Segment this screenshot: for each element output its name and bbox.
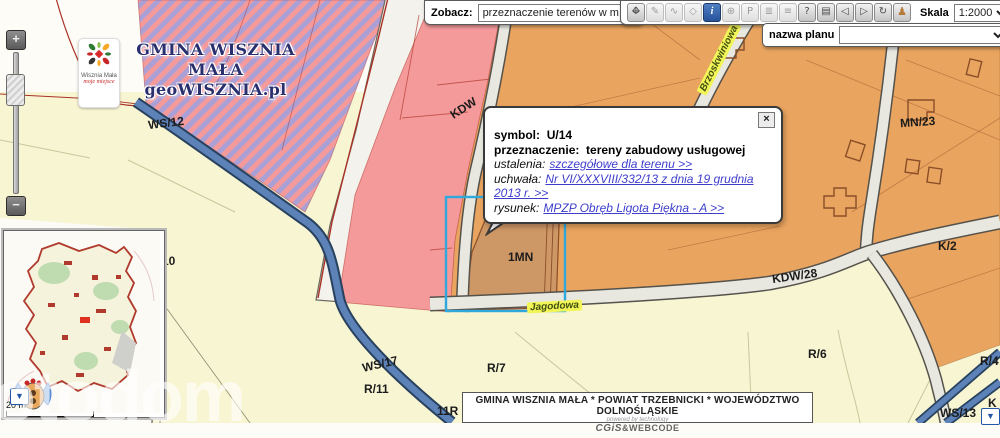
user-icon[interactable]: ♟ xyxy=(893,3,911,22)
info-icon[interactable]: i xyxy=(703,3,721,22)
back-icon[interactable]: ◁ xyxy=(836,3,854,22)
measure-icon[interactable]: ✎ xyxy=(646,3,664,22)
print-icon[interactable]: ▤ xyxy=(817,3,835,22)
site-title: GMINA WISZNIA MAŁA geoWISZNIA.pl xyxy=(118,40,313,100)
geoportal-app: { "branding":{ "municipality":"GMINA WIS… xyxy=(0,0,1000,423)
popup-purpose-value: tereny zabudowy usługowej xyxy=(586,143,745,157)
help-icon[interactable]: ? xyxy=(798,3,816,22)
forward-icon[interactable]: ▷ xyxy=(855,3,873,22)
scale-label: Skala xyxy=(920,7,949,19)
plan-name-panel: nazwa planu xyxy=(762,23,1000,47)
view-select-panel: Zobacz: przeznaczenie terenów w mpzp xyxy=(424,0,643,25)
overview-map-graphic xyxy=(4,231,160,413)
findings-link[interactable]: szczegółowe dla terenu >> xyxy=(549,157,692,171)
parking-icon[interactable]: P xyxy=(741,3,759,22)
inset-collapse-button[interactable]: ▼ xyxy=(10,388,29,405)
popup-symbol-row: symbol: U/14 xyxy=(494,128,772,143)
popup-symbol-value: U/14 xyxy=(547,128,572,142)
zoom-out-button[interactable]: − xyxy=(6,196,26,216)
footer-title: GMINA WISZNIA MAŁA * POWIAT TRZEBNICKI *… xyxy=(463,395,812,417)
plan-name-label: nazwa planu xyxy=(769,29,834,41)
main-toolbar: ↔ ↕ ✎ ∿ ◇ i ⊕ P ≣ ≡ ? ▤ ◁ ▷ ↻ ♟ Skala 1:… xyxy=(620,0,1000,25)
footer-brand: CGiS&WEBCODE xyxy=(463,423,812,434)
map-arrow-marker[interactable]: ▼ xyxy=(981,408,1000,425)
view-select[interactable]: przeznaczenie terenów w mpzp xyxy=(478,4,636,22)
legend-icon[interactable]: ≡ xyxy=(779,3,797,22)
layers-icon[interactable]: ≣ xyxy=(760,3,778,22)
measure-area-icon[interactable]: ◇ xyxy=(684,3,702,22)
view-select-label: Zobacz: xyxy=(431,7,473,19)
popup-purpose-row: przeznaczenie: tereny zabudowy usługowej xyxy=(494,143,772,158)
popup-findings-row: ustalenia:szczegółowe dla terenu >> xyxy=(494,157,772,172)
site-title-municipality: GMINA WISZNIA MAŁA xyxy=(118,40,313,80)
globe-icon[interactable]: ⊕ xyxy=(722,3,740,22)
footer-bar: GMINA WISZNIA MAŁA * POWIAT TRZEBNICKI *… xyxy=(462,392,813,423)
feature-info-popup: × symbol: U/14 przeznaczenie: tereny zab… xyxy=(483,106,783,224)
logo-tagline: moje miejsce xyxy=(79,79,119,85)
scale-select[interactable]: 1:2000 xyxy=(954,4,1000,22)
overview-view-marker xyxy=(80,317,90,323)
pan-icon[interactable]: ↔ ↕ xyxy=(627,3,645,22)
close-icon[interactable]: × xyxy=(758,112,775,128)
drawing-link[interactable]: MPZP Obręb Ligota Piękna - A >> xyxy=(543,201,724,215)
measure-line-icon[interactable]: ∿ xyxy=(665,3,683,22)
popup-drawing-row: rysunek:MPZP Obręb Ligota Piękna - A >> xyxy=(494,201,772,216)
municipality-logo: Wisznia Mała moje miejsce xyxy=(78,38,120,108)
logo-flower-icon xyxy=(86,41,112,67)
zoom-in-button[interactable]: + xyxy=(6,30,26,50)
plan-name-select[interactable] xyxy=(839,26,1000,44)
refresh-icon[interactable]: ↻ xyxy=(874,3,892,22)
popup-resolution-row: uchwała:Nr VI/XXXVIII/332/13 z dnia 19 g… xyxy=(494,172,772,201)
site-title-domain: geoWISZNIA.pl xyxy=(118,80,313,100)
zoom-slider-handle[interactable] xyxy=(6,74,25,106)
